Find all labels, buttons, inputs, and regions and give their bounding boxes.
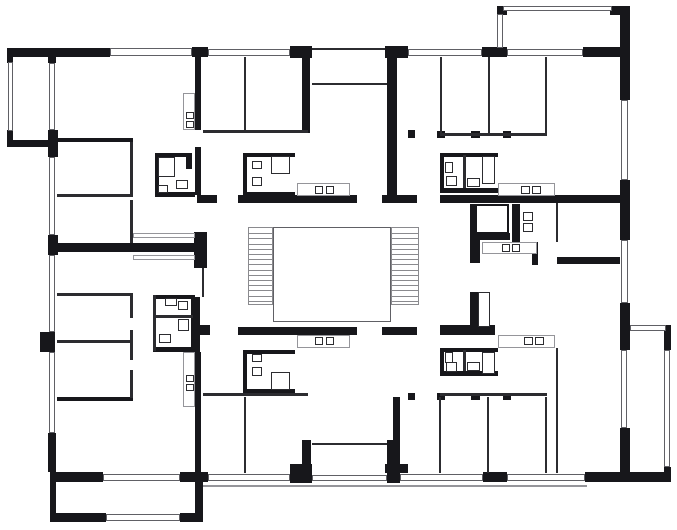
shower-fixture bbox=[482, 352, 495, 374]
window bbox=[103, 474, 180, 481]
stair-tread bbox=[249, 238, 272, 239]
partition-wall bbox=[203, 393, 308, 396]
stair-flight-left bbox=[248, 227, 273, 305]
partition-wall bbox=[487, 397, 489, 473]
balcony-edge bbox=[50, 482, 56, 515]
stove-burner bbox=[326, 186, 334, 194]
stove-burner bbox=[512, 244, 520, 252]
balcony-corner bbox=[7, 48, 13, 63]
closet bbox=[133, 233, 195, 238]
partition-wall bbox=[130, 370, 133, 398]
sink-fixture bbox=[467, 362, 480, 371]
stair-tread bbox=[392, 249, 418, 250]
unit-wall bbox=[191, 297, 200, 352]
bathroom-wall bbox=[243, 350, 295, 354]
stove-burner bbox=[186, 384, 194, 391]
stair-tread bbox=[392, 270, 418, 271]
balcony-railing bbox=[503, 6, 612, 11]
door-jamb bbox=[408, 393, 415, 400]
partition-wall bbox=[439, 397, 441, 473]
stair-tread bbox=[249, 264, 272, 265]
bathroom-partition bbox=[463, 155, 466, 188]
stair-tread bbox=[392, 254, 418, 255]
partition-wall bbox=[545, 57, 547, 133]
window bbox=[621, 240, 628, 303]
stair-tread bbox=[392, 296, 418, 297]
wc-fixture bbox=[178, 319, 189, 331]
balcony-edge bbox=[7, 140, 56, 147]
window bbox=[208, 474, 290, 481]
unit-wall bbox=[387, 58, 397, 203]
window bbox=[408, 49, 482, 56]
kitchen-counter bbox=[297, 183, 350, 196]
exterior-wall-bottom bbox=[483, 472, 507, 482]
exterior-wall-top bbox=[192, 47, 208, 57]
exterior-wall-right bbox=[620, 428, 630, 472]
corridor-wall bbox=[440, 195, 627, 203]
room-wall bbox=[57, 138, 133, 142]
partition-wall bbox=[556, 348, 558, 473]
exterior-wall-left bbox=[48, 433, 56, 472]
stair-tread bbox=[392, 233, 418, 234]
sink-fixture bbox=[252, 367, 262, 376]
stair-tread bbox=[249, 285, 272, 286]
wc-fixture bbox=[159, 334, 171, 343]
balcony-railing bbox=[497, 14, 503, 48]
exterior-wall-right bbox=[620, 303, 630, 350]
window bbox=[621, 350, 627, 428]
window bbox=[49, 352, 55, 433]
entry-pillar-left bbox=[290, 464, 312, 473]
stove-burner bbox=[532, 186, 541, 194]
terrace-edge bbox=[203, 485, 587, 487]
stair-tread bbox=[249, 244, 272, 245]
stair-tread bbox=[392, 301, 418, 302]
partition-wall bbox=[545, 397, 547, 473]
balcony-edge bbox=[50, 513, 106, 522]
partition-wall bbox=[130, 293, 133, 318]
bathroom-partition bbox=[155, 315, 193, 318]
entry-pillar-left bbox=[290, 472, 312, 483]
window bbox=[110, 48, 192, 56]
closet bbox=[133, 255, 195, 260]
window bbox=[49, 157, 55, 235]
stair-tread bbox=[392, 275, 418, 276]
unit-wall bbox=[470, 240, 480, 263]
wc-fixture bbox=[523, 223, 533, 232]
sink-fixture bbox=[165, 298, 177, 306]
corridor-wall bbox=[382, 327, 417, 335]
stair-tread bbox=[249, 301, 272, 302]
stove-burner bbox=[186, 112, 194, 119]
shower-fixture bbox=[271, 372, 290, 390]
stair-tread bbox=[249, 259, 272, 260]
stair-landing bbox=[273, 227, 391, 322]
window bbox=[208, 49, 290, 56]
exterior-wall-right bbox=[620, 180, 630, 240]
unit-wall bbox=[195, 147, 201, 195]
stair-tread bbox=[249, 290, 272, 291]
exterior-wall-left bbox=[48, 48, 56, 63]
stair-tread bbox=[249, 233, 272, 234]
window bbox=[507, 474, 585, 481]
wc-fixture bbox=[445, 162, 453, 173]
floor-plan bbox=[0, 0, 677, 530]
balcony-edge bbox=[195, 482, 203, 520]
bathroom-partition bbox=[153, 295, 156, 351]
stair-tread bbox=[249, 249, 272, 250]
door-jamb bbox=[408, 130, 415, 138]
bathroom-wall bbox=[243, 350, 247, 393]
sink-fixture bbox=[176, 180, 188, 189]
wc-fixture bbox=[523, 212, 533, 221]
partition-wall bbox=[244, 57, 246, 133]
stove-burner bbox=[315, 186, 323, 194]
corridor-edge bbox=[202, 268, 204, 297]
stair-tread bbox=[392, 290, 418, 291]
room-wall bbox=[57, 397, 133, 401]
stair-tread bbox=[249, 275, 272, 276]
bathroom-partition bbox=[463, 350, 466, 371]
wc-fixture bbox=[252, 161, 262, 169]
sink-fixture bbox=[252, 177, 262, 186]
unit-wall bbox=[195, 57, 201, 130]
partition-wall bbox=[440, 133, 547, 136]
stove-burner bbox=[186, 121, 194, 128]
duct-wall bbox=[470, 292, 478, 327]
unit-wall bbox=[393, 397, 400, 473]
exterior-wall-bottom bbox=[585, 472, 630, 482]
partition-wall bbox=[244, 397, 246, 473]
wc-fixture bbox=[158, 185, 168, 193]
stair-tread bbox=[392, 238, 418, 239]
entry-pillar-right bbox=[385, 46, 408, 58]
stove-burner bbox=[326, 337, 334, 345]
window bbox=[621, 100, 628, 180]
partition-wall bbox=[440, 57, 442, 136]
partition-wall bbox=[130, 330, 133, 360]
stove-burner bbox=[521, 186, 530, 194]
corridor-wall bbox=[197, 195, 217, 203]
partition-wall bbox=[57, 293, 133, 296]
sink-fixture bbox=[446, 362, 457, 372]
stove-burner bbox=[524, 337, 533, 345]
shower-fixture bbox=[271, 156, 290, 174]
elevator-wall bbox=[470, 233, 510, 240]
partition-wall bbox=[57, 340, 133, 343]
exterior-wall-left bbox=[40, 332, 55, 352]
corridor-wall bbox=[238, 327, 357, 335]
bathroom-wall bbox=[440, 348, 444, 376]
bathroom-wall bbox=[243, 153, 247, 197]
party-wall-block bbox=[194, 232, 207, 268]
sink-fixture bbox=[467, 178, 480, 187]
wc-wall bbox=[512, 204, 520, 242]
party-wall bbox=[50, 243, 195, 252]
elevator-shaft bbox=[475, 204, 509, 234]
window bbox=[49, 255, 55, 332]
stair-tread bbox=[392, 244, 418, 245]
balcony-railing bbox=[630, 325, 666, 331]
stair-flight-right bbox=[391, 227, 419, 305]
balcony-railing bbox=[664, 350, 670, 467]
bathroom-wall bbox=[440, 153, 444, 192]
stair-tread bbox=[249, 280, 272, 281]
stove-burner bbox=[502, 244, 510, 252]
unit-wall bbox=[195, 352, 201, 473]
balcony-railing bbox=[106, 514, 180, 521]
partition-wall bbox=[440, 393, 547, 396]
exterior-wall-bottom bbox=[50, 472, 103, 482]
partition-wall bbox=[488, 57, 490, 133]
bathroom-wall bbox=[243, 192, 295, 197]
unit-wall bbox=[302, 50, 310, 133]
balcony-corner bbox=[664, 467, 671, 482]
stair-tread bbox=[392, 259, 418, 260]
stair-tread bbox=[249, 296, 272, 297]
stove-burner bbox=[535, 337, 544, 345]
stove-burner bbox=[186, 375, 194, 382]
entry-pillar-right bbox=[387, 472, 400, 483]
room-wall bbox=[557, 257, 620, 264]
wc-fixture bbox=[252, 354, 262, 362]
sink-fixture bbox=[178, 301, 188, 310]
window bbox=[507, 49, 583, 56]
balcony-railing bbox=[8, 62, 13, 131]
stair-tread bbox=[392, 280, 418, 281]
bathroom-wall bbox=[186, 153, 192, 169]
sink-fixture bbox=[446, 176, 457, 186]
exterior-wall-right bbox=[620, 10, 630, 100]
kitchen-counter bbox=[297, 335, 350, 348]
entry-recess-face bbox=[312, 48, 385, 50]
stair-tread bbox=[392, 264, 418, 265]
stair-tread bbox=[249, 254, 272, 255]
window bbox=[49, 63, 55, 130]
entry-recess-inner bbox=[312, 83, 387, 85]
entry-recess-inner bbox=[312, 443, 387, 445]
entry-porch bbox=[312, 475, 387, 481]
exterior-wall-top bbox=[7, 48, 110, 57]
shower-fixture bbox=[158, 157, 175, 177]
partition-wall bbox=[203, 130, 308, 133]
partition-wall bbox=[130, 142, 133, 194]
partition-wall bbox=[57, 194, 133, 197]
stove-burner bbox=[315, 337, 323, 345]
bathroom-wall bbox=[440, 188, 498, 193]
duct-shaft bbox=[478, 292, 490, 327]
exterior-wall-top bbox=[482, 47, 507, 57]
stair-tread bbox=[392, 285, 418, 286]
shower-fixture bbox=[482, 156, 495, 184]
window bbox=[400, 474, 483, 481]
partition-wall bbox=[556, 203, 558, 242]
exterior-wall-bottom bbox=[180, 472, 208, 482]
stair-tread bbox=[249, 270, 272, 271]
